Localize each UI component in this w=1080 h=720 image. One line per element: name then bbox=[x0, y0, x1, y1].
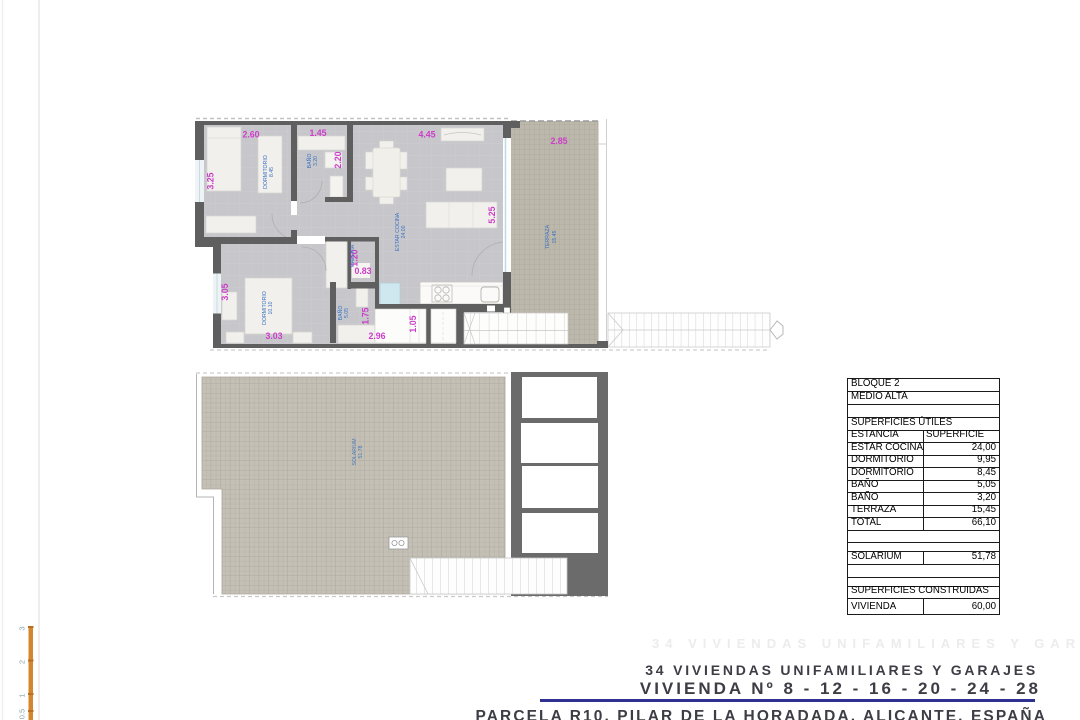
svg-text:5.25: 5.25 bbox=[487, 206, 497, 223]
svg-text:1.45: 1.45 bbox=[309, 128, 326, 138]
svg-text:BAÑO: BAÑO bbox=[306, 154, 313, 169]
svg-text:3.05: 3.05 bbox=[220, 283, 230, 300]
svg-text:15.45: 15.45 bbox=[552, 230, 558, 243]
svg-text:1.05: 1.05 bbox=[408, 315, 418, 332]
svg-text:24.00: 24.00 bbox=[401, 225, 407, 238]
svg-text:2.20: 2.20 bbox=[333, 151, 343, 168]
svg-text:4.45: 4.45 bbox=[418, 130, 435, 140]
svg-text:1.75: 1.75 bbox=[361, 307, 371, 324]
svg-text:10.10: 10.10 bbox=[268, 301, 274, 314]
svg-text:3.25: 3.25 bbox=[206, 172, 216, 189]
svg-text:5.05: 5.05 bbox=[344, 308, 350, 318]
svg-text:2.96: 2.96 bbox=[368, 331, 385, 341]
svg-text:BAÑO: BAÑO bbox=[337, 306, 344, 321]
svg-text:3.20: 3.20 bbox=[313, 156, 319, 166]
svg-text:3: 3 bbox=[18, 626, 27, 630]
svg-text:8.45: 8.45 bbox=[269, 167, 275, 177]
svg-text:2.85: 2.85 bbox=[550, 136, 567, 146]
svg-text:TERRAZA: TERRAZA bbox=[545, 224, 551, 249]
svg-text:GALERIA: GALERIA bbox=[350, 244, 356, 267]
svg-text:51.78: 51.78 bbox=[358, 445, 364, 458]
svg-text:2.60: 2.60 bbox=[242, 130, 259, 140]
svg-text:3.03: 3.03 bbox=[265, 331, 282, 341]
